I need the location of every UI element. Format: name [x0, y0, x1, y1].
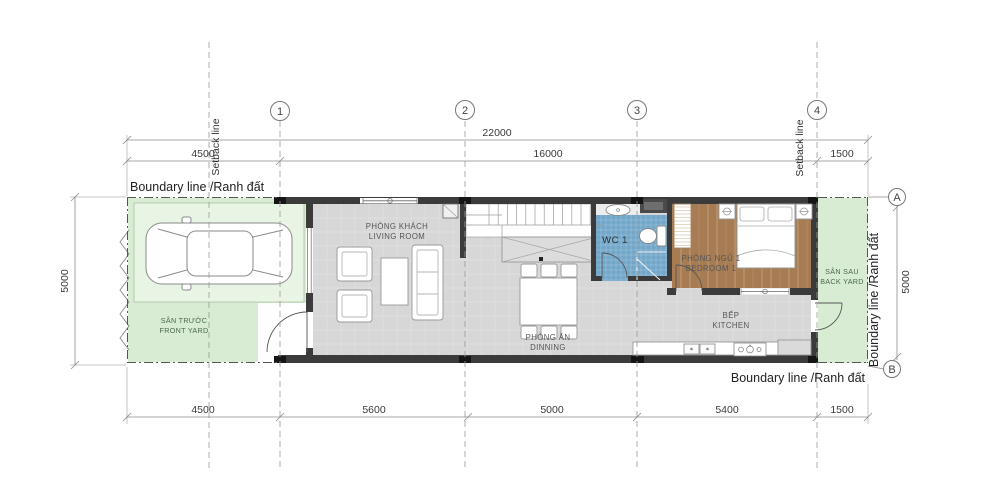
- ac-unit-box: [443, 204, 458, 218]
- facade-window: [306, 228, 313, 293]
- grid-label-A: A: [893, 192, 901, 204]
- stair-direction-dot: [539, 257, 543, 261]
- wall-bedroom-bottom-c: [790, 288, 818, 295]
- wall-bedroom-bottom-b: [702, 288, 740, 295]
- wall-left-upper: [306, 204, 313, 228]
- grid-label-2: 2: [462, 105, 468, 117]
- wall-wc-bottom-a: [591, 276, 602, 281]
- boundary-top-label: Boundary line /Ranh đất: [130, 180, 265, 194]
- coffee-table: [381, 258, 408, 305]
- floor-plan-drawing: 1 2 3 4 A B 22000 4500 16000 1500 4500 5…: [0, 0, 1000, 500]
- dining-furniture: [520, 264, 577, 339]
- living-window: [360, 198, 418, 205]
- floor-plan-page: 1 2 3 4 A B 22000 4500 16000 1500 4500 5…: [0, 0, 1000, 500]
- boundary-right-label: Boundary line /Ranh đất: [867, 232, 881, 367]
- grid-label-1: 1: [277, 106, 283, 118]
- dim-bot-5400: 5400: [715, 404, 739, 416]
- wall-left-mid: [306, 293, 313, 312]
- bedroom-window: [740, 289, 790, 295]
- dim-top-1500: 1500: [830, 148, 854, 160]
- chair: [561, 264, 577, 277]
- bedroom-label-en: BEDROOM 1: [686, 264, 736, 273]
- grid-label-4: 4: [814, 105, 820, 117]
- living-label-en: LIVING ROOM: [369, 232, 425, 241]
- dining-label-vi: PHÒNG ĂN: [526, 333, 571, 342]
- pillow: [740, 207, 764, 221]
- living-label-vi: PHÒNG KHÁCH: [366, 222, 428, 231]
- stair-area: [466, 204, 603, 237]
- dim-bot-5000: 5000: [540, 404, 564, 416]
- front-yard-label-vi: SÂN TRƯỚC: [161, 316, 207, 325]
- boundary-bottom-label: Boundary line /Ranh đất: [731, 371, 866, 385]
- wall-wc-bottom-b: [628, 276, 667, 281]
- dim-bot-4500: 4500: [191, 404, 215, 416]
- sink-icon: [606, 205, 630, 216]
- wall-wc-left: [591, 204, 596, 281]
- grid-label-3: 3: [634, 105, 640, 117]
- wall-top: [278, 197, 818, 204]
- dim-top-16000: 16000: [533, 148, 562, 160]
- bedroom-label-vi: PHÒNG NGỦ 1: [682, 254, 741, 263]
- front-yard-label-en: FRONT YARD: [160, 326, 209, 335]
- kitchen-label-vi: BẾP: [723, 310, 740, 320]
- back-yard-label-vi: SÂN SAU: [825, 267, 859, 276]
- dim-left-5000: 5000: [59, 269, 71, 293]
- grid-label-B: B: [888, 364, 895, 376]
- dim-right-5000: 5000: [900, 270, 912, 294]
- toilet-tank: [657, 226, 666, 246]
- wall-bedroom-bottom-a: [667, 288, 676, 295]
- wc-label: WC 1: [602, 235, 628, 246]
- dining-label-en: DINNING: [530, 343, 566, 352]
- dim-bot-5600: 5600: [362, 404, 386, 416]
- wall-wc-bedroom: [667, 204, 672, 281]
- entry-porch: [258, 303, 306, 362]
- dining-table: [520, 278, 577, 325]
- dim-bot-1500: 1500: [830, 404, 854, 416]
- dim-top-total: 22000: [482, 127, 511, 139]
- chair: [541, 264, 557, 277]
- kitchen-label-en: KITCHEN: [712, 321, 749, 330]
- toilet-bowl: [640, 229, 657, 244]
- kitchen-fixtures: [633, 340, 811, 356]
- pillow: [768, 207, 792, 221]
- chair: [521, 264, 537, 277]
- setback-right-label: Setback line: [794, 119, 806, 176]
- car-icon: [146, 217, 292, 290]
- back-yard-label-en: BACK YARD: [820, 277, 864, 286]
- setback-left-label: Setback line: [210, 118, 222, 175]
- kitchen-counter-right: [778, 340, 811, 355]
